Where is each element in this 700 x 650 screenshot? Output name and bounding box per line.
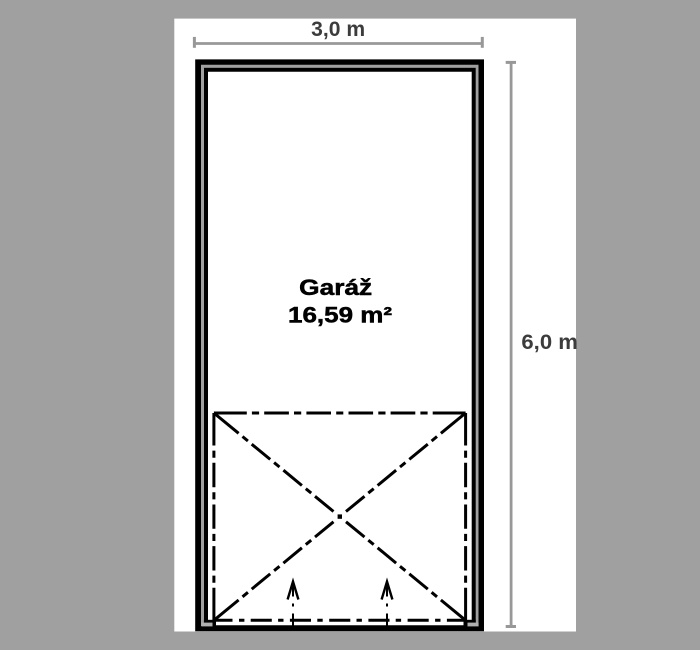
svg-text:3,0 m: 3,0 m: [311, 18, 365, 41]
svg-text:Garáž: Garáž: [299, 275, 372, 300]
svg-text:6,0 m: 6,0 m: [521, 330, 578, 354]
svg-text:16,59 m²: 16,59 m²: [288, 302, 392, 327]
